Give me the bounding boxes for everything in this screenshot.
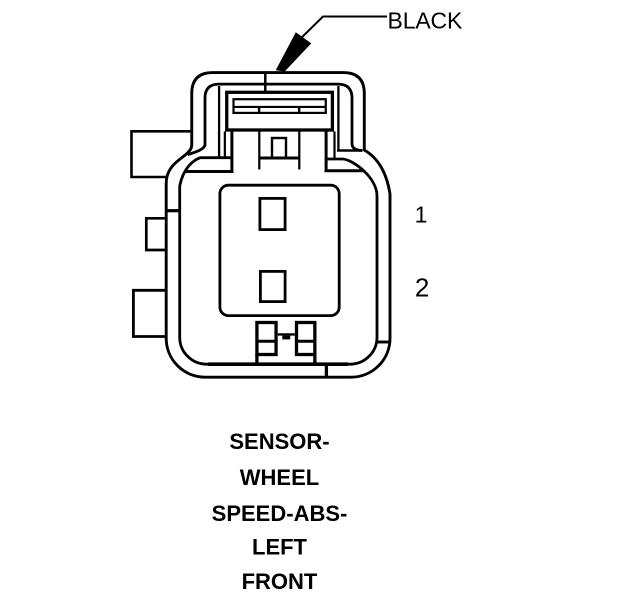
svg-text:LEFT: LEFT: [252, 535, 308, 560]
svg-text:BLACK: BLACK: [388, 7, 463, 33]
svg-text:1: 1: [415, 202, 428, 228]
svg-text:SENSOR-: SENSOR-: [229, 429, 329, 454]
svg-text:2: 2: [415, 272, 429, 302]
svg-text:FRONT: FRONT: [242, 569, 318, 594]
svg-text:SPEED-ABS-: SPEED-ABS-: [212, 501, 348, 526]
svg-text:WHEEL: WHEEL: [240, 465, 319, 490]
